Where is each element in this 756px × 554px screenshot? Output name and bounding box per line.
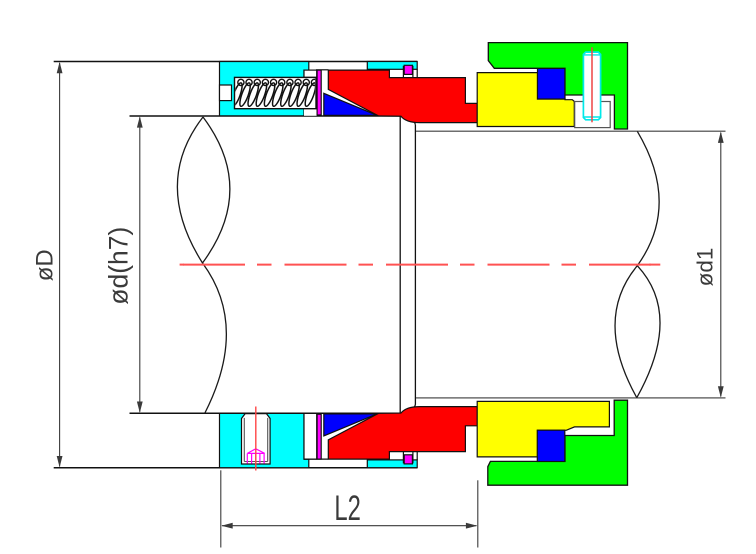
svg-text:ød(h7): ød(h7) [104,227,134,305]
svg-text:øD: øD [31,249,58,281]
svg-text:ød1: ød1 [692,248,717,287]
svg-text:L2: L2 [334,490,360,529]
